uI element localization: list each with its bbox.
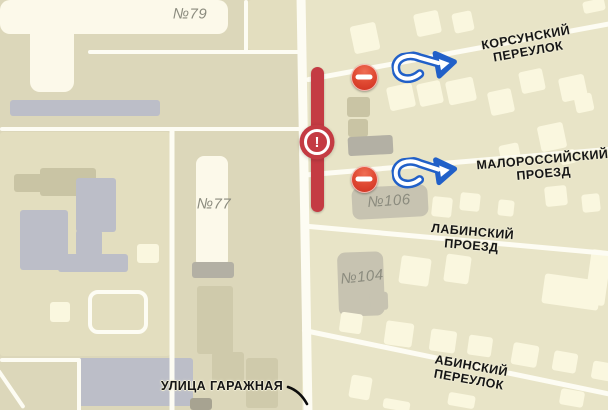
markers-layer <box>0 0 608 410</box>
detour-arrow-icon[interactable] <box>390 46 460 91</box>
no-entry-icon[interactable] <box>351 64 378 91</box>
detour-arrow-icon[interactable] <box>390 153 459 196</box>
map-canvas[interactable]: КОРСУНСКИЙ ПЕРЕУЛОКМАЛОРОССИЙСКИЙ ПРОЕЗД… <box>0 0 608 410</box>
no-entry-icon[interactable] <box>351 166 378 193</box>
no-entry-bar <box>356 75 373 80</box>
no-entry-bar <box>356 177 373 182</box>
